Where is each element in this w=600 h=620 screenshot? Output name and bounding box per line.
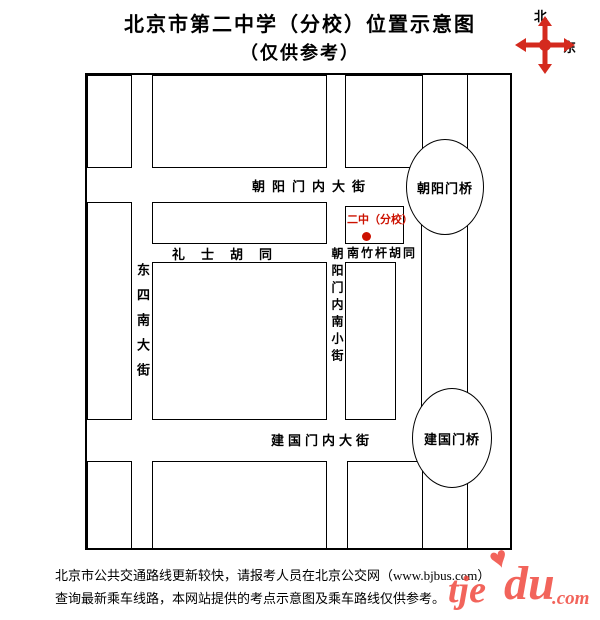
city-block: [345, 75, 423, 168]
footer-note-line2: 查询最新乘车线路，本网站提供的考点示意图及乘车路线仅供参考。: [55, 588, 445, 607]
page-subtitle: （仅供参考）: [0, 39, 600, 65]
watermark-text-2: du: [504, 556, 555, 611]
street-label-nanzhugan-hutong: 南竹杆胡同: [347, 244, 417, 261]
city-block: [152, 202, 327, 244]
footer-note-line1: 北京市公共交通路线更新较快，请报考人员在北京公交网（www.bjbus.com）: [55, 565, 490, 584]
school-marker-label: 二中（分校）: [347, 211, 413, 227]
city-block: [87, 461, 132, 549]
bridge-jianguomen-label: 建国门桥: [424, 429, 480, 448]
compass-icon: [515, 16, 579, 74]
street-label-jianguomennei-dajie: 建国门内大街: [271, 430, 373, 449]
city-block: [152, 461, 327, 549]
bridge-chaoyangmen: 朝阳门桥: [406, 139, 484, 235]
city-block: [87, 202, 132, 420]
city-block: [152, 75, 327, 168]
city-block: [347, 461, 423, 549]
page-title: 北京市第二中学（分校）位置示意图: [0, 8, 600, 37]
city-block: [87, 75, 132, 168]
street-label-dongsi-nan-dajie: 东四南大街: [133, 263, 152, 388]
watermark-text-3: .com: [552, 588, 589, 610]
bridge-chaoyangmen-label: 朝阳门桥: [417, 178, 473, 197]
street-label-chaoyangmennei-nanxiaojie: 朝阳门内南小街: [329, 247, 346, 366]
school-marker-dot: [362, 232, 371, 241]
bridge-jianguomen: 建国门桥: [412, 388, 492, 488]
street-label-chaoyangmennei-dajie: 朝阳门内大街: [252, 176, 372, 195]
street-label-lishi-hutong: 礼士胡同: [172, 244, 288, 263]
watermark-logo: ♥ tje du .com: [446, 540, 600, 620]
watermark-text-1: tje: [448, 568, 486, 612]
city-block: [345, 262, 396, 420]
city-block: [152, 262, 327, 420]
